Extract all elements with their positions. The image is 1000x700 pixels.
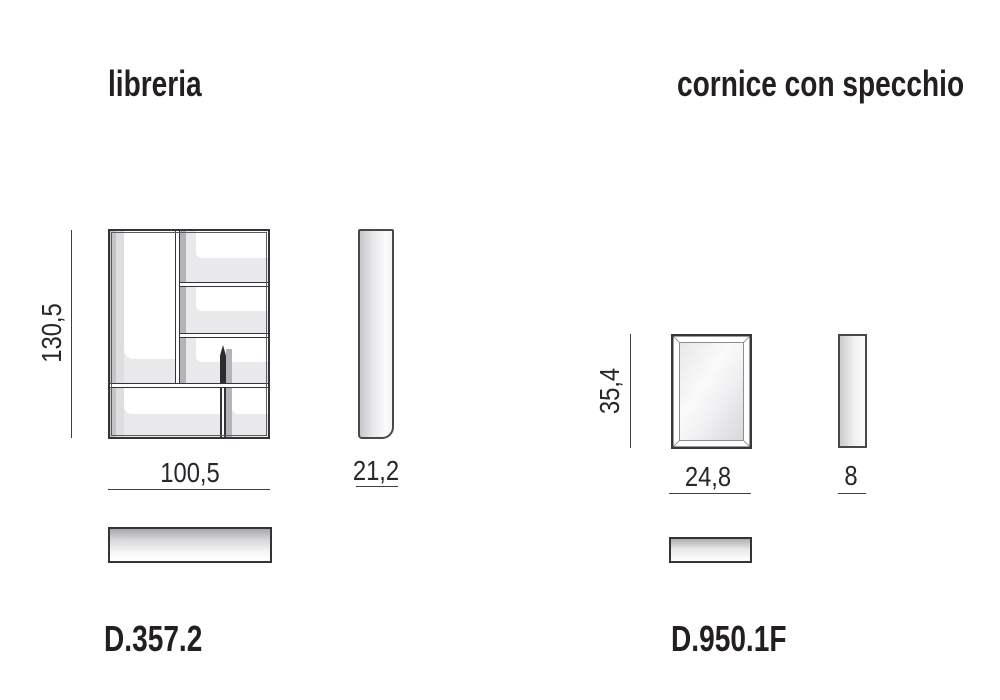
libreria-shelf-bottom bbox=[110, 383, 268, 388]
libreria-shelf-1 bbox=[180, 282, 268, 287]
libreria-bottom-divider bbox=[220, 388, 226, 437]
mirror-glass bbox=[680, 343, 744, 441]
mirror-depth-dimension-line bbox=[838, 493, 866, 494]
mirror-plan-view bbox=[669, 537, 752, 563]
libreria-shelf-2 bbox=[180, 333, 268, 338]
mirror-height-dimension-label: 35,4 bbox=[596, 368, 624, 414]
mirror-width-dimension-line bbox=[669, 493, 751, 494]
mirror-height-dimension-line bbox=[630, 334, 631, 448]
catalog-page: { "products": [ { "id": "libreria", "tit… bbox=[0, 0, 1000, 700]
mirror-width-dimension-label: 24,8 bbox=[685, 463, 731, 491]
mirror-section: cornice con specchio 35,4 24,8 8 D.950.1… bbox=[0, 0, 1000, 700]
mirror-depth-dimension-label: 8 bbox=[844, 462, 857, 490]
libreria-center-divider bbox=[175, 231, 180, 383]
mirror-side-view bbox=[838, 334, 867, 448]
mirror-title: cornice con specchio bbox=[677, 66, 964, 102]
mirror-front-view bbox=[671, 334, 752, 449]
mirror-model-code: D.950.1F bbox=[671, 621, 787, 657]
